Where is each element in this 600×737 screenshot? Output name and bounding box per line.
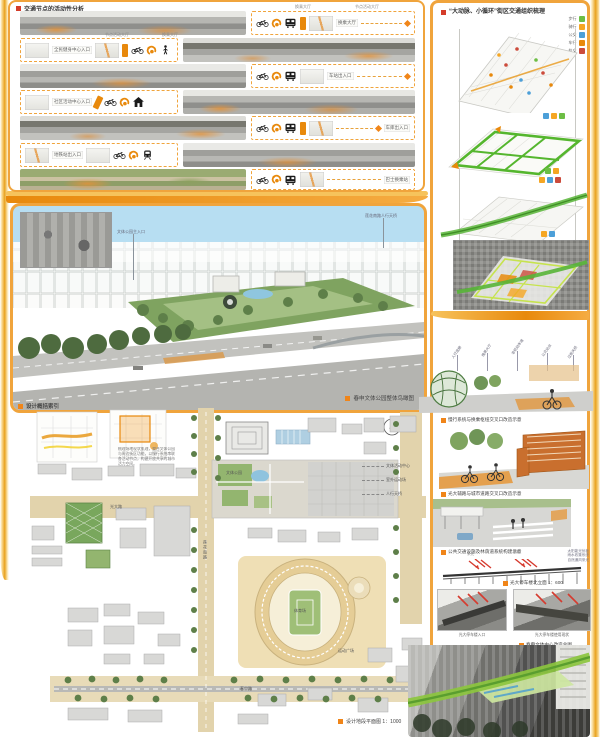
mode-icons <box>256 71 297 82</box>
index-paragraph: 梳理场地现状肌理，整合文体公园与周边街区功能，以慢行系统串联各活动节点，构建开放… <box>118 447 176 467</box>
activity-dial-icon <box>119 97 130 108</box>
canopy-label: 光大停车楼入口 <box>439 633 505 638</box>
legend-walk-swatch <box>579 16 586 23</box>
axon-diagram-activity <box>451 25 581 113</box>
entrance-sketch-icon <box>300 17 306 30</box>
mode-icons <box>256 18 297 29</box>
perspective-transit-street <box>433 499 571 547</box>
street-panorama-photo <box>20 169 246 190</box>
key-orange <box>539 177 545 183</box>
node-icon-box: 地铁站出入口 <box>20 143 178 167</box>
leader-label: 非机动车道 <box>511 338 525 356</box>
annotation-leader <box>133 234 134 280</box>
plan-sketch-thumb <box>25 95 49 110</box>
parking-entrance-photo <box>437 589 507 631</box>
dashed-connector <box>327 179 381 180</box>
caption-text: 光大辅路与城市道路交叉口改造示意 <box>448 491 522 497</box>
train-icon <box>141 150 154 160</box>
plan-label-text: 文体活动中心 <box>386 463 410 469</box>
node-row: 巴士换乘站 <box>20 169 415 190</box>
red-arrow-overlay <box>438 590 507 631</box>
section-arrow-label-1: 采光 <box>467 552 474 557</box>
greenway-photomontage <box>408 645 590 737</box>
diagram2-key-squares <box>545 168 559 174</box>
bus-icon <box>284 175 297 185</box>
caption-square-icon <box>441 418 446 423</box>
key-green <box>559 113 565 119</box>
perspective-dome-crossing <box>419 355 593 417</box>
diagram2-key-squares-2 <box>539 177 561 183</box>
key-red <box>555 177 561 183</box>
location-inset-photo <box>20 212 112 268</box>
compass-diamond-icon <box>404 19 411 26</box>
traffic-strategy-column: “大动脉、小循环”街区交通组织梳理 步行 骑行 公交 车行 轨交 <box>430 0 590 737</box>
gate-sketch-icon <box>300 122 306 135</box>
caption-square-icon <box>338 719 343 724</box>
street-panorama-photo <box>183 143 415 167</box>
leader-dash <box>362 494 384 495</box>
node-label: 社区活动中心入口 <box>52 98 92 106</box>
bicycle-icon <box>256 123 269 133</box>
bus-icon <box>284 71 297 81</box>
bus-icon <box>284 18 297 28</box>
street-panorama-photo <box>20 116 246 140</box>
road-label-boulevard: 春申路 <box>240 686 252 692</box>
key-blue <box>547 177 553 183</box>
row1-top-label-2: 节点活动大厅 <box>355 4 379 10</box>
legend-label: 步行 <box>569 16 577 22</box>
aerial-perspective-panel: 莲花南路人行天桥 文体公园主入口 春申文体公园整体鸟瞰图 <box>10 203 427 413</box>
key-blue <box>549 231 555 237</box>
presentation-board: 交通节点的活动性分析 换乘大厅 节点活动大厅 换乘大厅 节点活动大厅 换乘大厅 <box>0 0 600 737</box>
plan-leader-label: 室外运动场 <box>362 477 406 483</box>
key-orange <box>551 113 557 119</box>
node-label: 地铁站出入口 <box>52 151 83 159</box>
plan-leader-label: 人行天桥 <box>362 491 402 497</box>
node-icon-box: 车库出入口 <box>251 116 415 140</box>
activity-dial-icon <box>271 174 282 185</box>
node-label: 车库出入口 <box>384 124 411 132</box>
divider-swoosh-orange <box>6 196 428 203</box>
mode-icons <box>131 45 172 56</box>
caption-dome-crossing: 慢行系统与换乘枢纽交叉口改造示意 <box>441 417 522 423</box>
caption-square-icon <box>441 550 446 555</box>
street-panorama-photo <box>183 90 415 114</box>
key-blue <box>543 113 549 119</box>
dashed-connector <box>357 76 403 77</box>
caption-parking-elevation: 光大停车楼北立面 1：600 <box>503 580 563 586</box>
bicycle-icon <box>256 71 269 81</box>
key-orange <box>553 168 559 174</box>
node-label: 全民健身中心入口 <box>52 46 92 54</box>
annotation-leader <box>383 218 384 248</box>
red-arrow-overlay <box>514 590 591 631</box>
aerial-overlay-diagram <box>453 240 589 310</box>
parking-deck-photo <box>513 589 591 631</box>
plan-sketch-thumb <box>95 43 119 58</box>
node-label: 换乘大厅 <box>336 19 358 27</box>
axon-diagram-green-loops <box>443 121 588 177</box>
home-icon <box>132 97 145 107</box>
site-plan-drawing <box>8 398 428 737</box>
key-orange <box>541 231 547 237</box>
leader-dash <box>362 480 384 481</box>
compass-diamond-icon <box>404 72 411 79</box>
node-row: 换乘大厅 <box>20 11 415 35</box>
street-panorama-photo <box>20 11 246 35</box>
bus-icon <box>284 123 297 133</box>
street-panorama-photo <box>183 38 415 62</box>
section-arrow-label-2: 通风 <box>513 550 520 555</box>
plan-leader-label: 文体活动中心 <box>362 463 410 469</box>
diagram1-key-squares <box>543 113 565 119</box>
park-label: 文体公园 <box>226 470 242 476</box>
node-row: 车站出入口 <box>20 64 415 88</box>
caption-timber-structure: 光大辅路与城市道路交叉口改造示意 <box>441 491 522 497</box>
activity-dial-icon <box>146 45 157 56</box>
compass-diamond-icon <box>374 124 381 131</box>
mode-icons <box>104 97 145 108</box>
canopy-label: 光大停车楼使用现状 <box>513 633 591 638</box>
row1-top-label-1: 换乘大厅 <box>295 4 311 10</box>
bicycle-icon <box>256 18 269 28</box>
plan-sketch-thumb <box>300 69 324 84</box>
column-divider-swoosh <box>431 311 589 320</box>
mode-icons <box>113 150 154 161</box>
column-title-text: “大动脉、小循环”街区交通组织梳理 <box>449 9 545 16</box>
title-square-icon <box>441 10 446 15</box>
montage-overlay <box>408 645 590 737</box>
diagram3-key-squares <box>541 231 555 237</box>
node-label: 车站出入口 <box>327 72 354 80</box>
perspective-timber-structure <box>439 425 589 489</box>
pedestrian-icon <box>159 45 172 55</box>
activity-dial-icon <box>271 18 282 29</box>
legend-item: 步行 <box>545 15 585 23</box>
mode-icons <box>256 123 297 134</box>
leader-dash <box>362 466 384 467</box>
caption-text: 光大停车楼北立面 1：600 <box>510 580 563 586</box>
plan-caption-text: 设计地段平面图 1：1000 <box>346 718 401 725</box>
node-icon-box: 全民健身中心入口 <box>20 38 178 62</box>
transit-node-analysis-panel: 交通节点的活动性分析 换乘大厅 节点活动大厅 换乘大厅 节点活动大厅 换乘大厅 <box>8 0 425 192</box>
ramp-sketch-icon <box>93 95 104 109</box>
stadium-label: 体育场 <box>294 608 306 614</box>
node-row: 全民健身中心入口 <box>20 38 415 62</box>
node-icon-box: 换乘大厅 <box>251 11 415 35</box>
aerial-annotation: 文体公园主入口 <box>117 229 145 235</box>
road-label-horizontal: 光大路 <box>110 504 122 510</box>
plan-sketch-thumb <box>25 43 49 58</box>
node-label: 巴士换乘站 <box>384 176 411 184</box>
node-icon-box: 巴士换乘站 <box>251 169 415 190</box>
caption-text: 公共交通设施及林荫道系统构建示意 <box>448 549 522 555</box>
dashed-connector <box>336 128 373 129</box>
caption-transit-street: 公共交通设施及林荫道系统构建示意 <box>441 549 522 555</box>
bicycle-icon <box>113 150 126 160</box>
bicycle-icon <box>256 175 269 185</box>
node-icon-box: 社区活动中心入口 <box>20 90 178 114</box>
plan-label-text: 人行天桥 <box>386 491 402 497</box>
bicycle-icon <box>131 45 144 55</box>
aerial-annotation: 莲花南路人行天桥 <box>365 213 397 219</box>
street-panorama-photo <box>20 64 246 88</box>
caption-text: 慢行系统与换乘枢纽交叉口改造示意 <box>448 417 522 423</box>
node-row: 社区活动中心入口 <box>20 90 415 114</box>
caption-square-icon <box>441 492 446 497</box>
node-row: 车库出入口 <box>20 116 415 140</box>
node-row: 地铁站出入口 <box>20 143 415 167</box>
plan-label-text: 室外运动场 <box>386 477 406 483</box>
plan-sketch-thumb <box>309 121 333 136</box>
plan-sketch-thumb <box>300 172 324 187</box>
activity-dial-icon <box>271 71 282 82</box>
plan-sketch-thumb <box>309 16 333 31</box>
plaza-label: 运动广场 <box>338 648 354 654</box>
key-green <box>545 168 551 174</box>
column-title: “大动脉、小循环”街区交通组织梳理 <box>441 9 551 16</box>
axon-diagram-greenway <box>439 185 589 243</box>
plan-sketch-thumb <box>86 148 110 163</box>
plan-caption: 设计地段平面图 1：1000 <box>338 718 401 725</box>
node-icon-box: 车站出入口 <box>251 64 415 88</box>
caption-square-icon <box>503 581 508 586</box>
road-label-vertical: 莲花南路 <box>202 540 208 560</box>
mode-icons <box>256 174 297 185</box>
dashed-connector <box>361 23 402 24</box>
entrance-sketch-icon <box>122 44 128 57</box>
activity-dial-icon <box>128 150 139 161</box>
bicycle-icon <box>104 97 117 107</box>
plan-sketch-thumb <box>25 148 49 163</box>
activity-dial-icon <box>271 123 282 134</box>
